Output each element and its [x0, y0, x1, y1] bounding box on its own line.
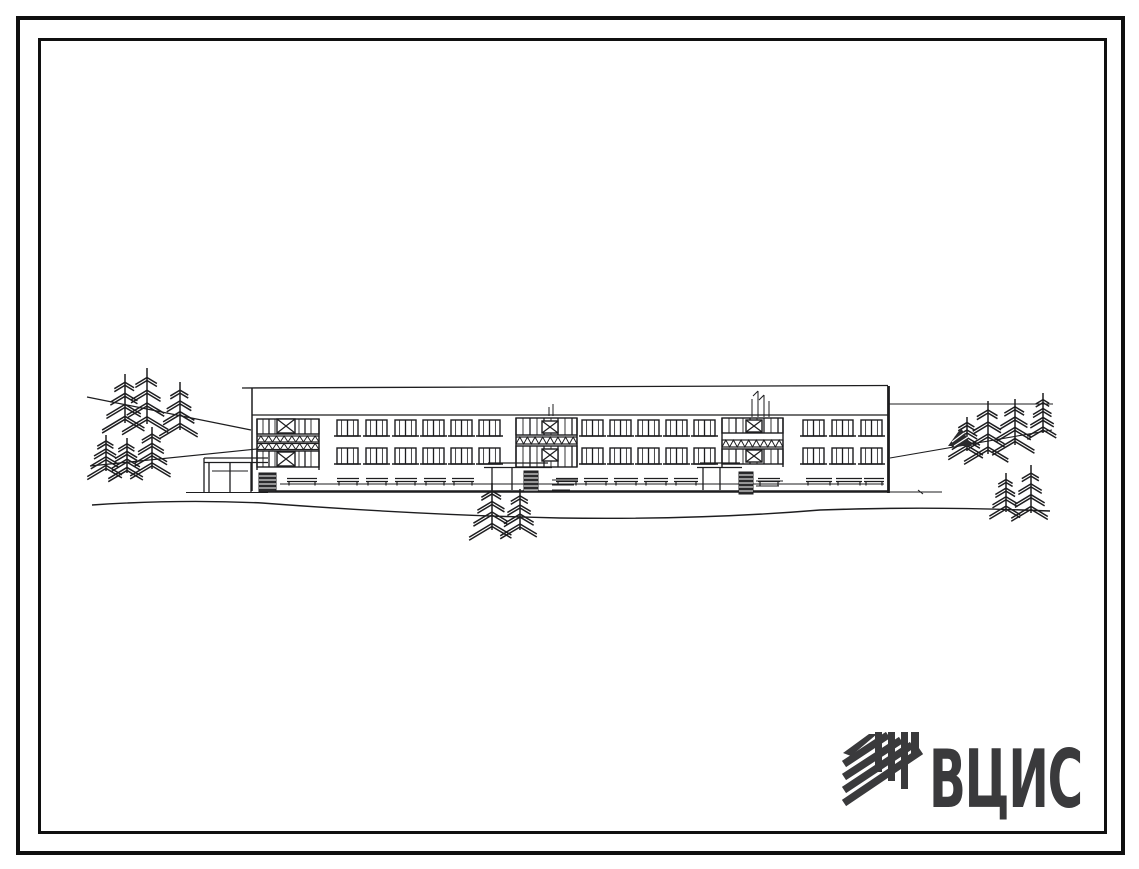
building-elevation	[204, 386, 889, 495]
roof-antenna-marks	[549, 391, 769, 417]
front-right-trees	[989, 465, 1047, 521]
bench-row	[287, 479, 884, 486]
scanned-drawing-sheet: ВЦИС	[0, 0, 1139, 869]
window-rows	[334, 420, 885, 464]
left-lower-tree-cluster	[87, 427, 170, 482]
vcis-logo: ВЦИС	[843, 732, 1082, 826]
vcis-logo-text: ВЦИС	[929, 733, 1082, 826]
left-entrance-canopy	[204, 458, 268, 492]
elevation-drawing: ВЦИС	[0, 0, 1139, 869]
diagonal-hatch-builder-mark-icon	[843, 732, 921, 803]
